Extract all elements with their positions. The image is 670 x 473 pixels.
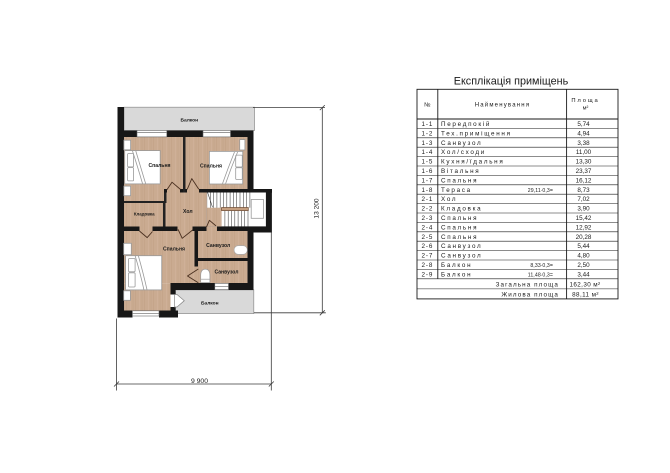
svg-text:11,00: 11,00 <box>576 149 592 156</box>
svg-text:Санвузол: Санвузол <box>441 253 482 260</box>
svg-text:9 900: 9 900 <box>191 378 208 385</box>
svg-text:Спальня: Спальня <box>200 163 222 169</box>
svg-text:1-3: 1-3 <box>421 140 433 147</box>
svg-text:Кухня/їдальня: Кухня/їдальня <box>441 159 504 166</box>
svg-text:3,90: 3,90 <box>577 206 590 213</box>
svg-text:3,44: 3,44 <box>577 271 590 278</box>
svg-text:16,12: 16,12 <box>576 177 592 184</box>
svg-text:Хол: Хол <box>441 196 457 203</box>
svg-text:1-8: 1-8 <box>421 187 433 194</box>
svg-text:4,80: 4,80 <box>577 253 590 260</box>
svg-text:Найменування: Найменування <box>475 102 531 109</box>
svg-text:2-5: 2-5 <box>421 234 433 241</box>
svg-text:Тех.приміщення: Тех.приміщення <box>441 129 512 137</box>
svg-text:Хол/сходи: Хол/сходи <box>441 149 486 156</box>
svg-text:8,73: 8,73 <box>577 187 590 194</box>
svg-text:Хол: Хол <box>183 209 193 215</box>
svg-text:88,11 м²: 88,11 м² <box>572 292 599 299</box>
svg-text:Спальня: Спальня <box>441 215 478 222</box>
svg-text:Передпокій: Передпокій <box>441 120 491 128</box>
svg-text:2-8: 2-8 <box>421 262 433 269</box>
svg-text:2-9: 2-9 <box>421 271 433 278</box>
svg-text:1-1: 1-1 <box>421 121 433 128</box>
svg-text:Санвузол: Санвузол <box>214 269 238 275</box>
svg-text:2,50: 2,50 <box>577 262 590 269</box>
svg-text:1-5: 1-5 <box>421 159 433 166</box>
svg-text:Санвузол: Санвузол <box>441 140 482 147</box>
svg-text:Спальня: Спальня <box>163 246 185 252</box>
svg-text:23,37: 23,37 <box>576 168 592 175</box>
svg-text:№: № <box>424 102 430 109</box>
svg-text:5,74: 5,74 <box>577 121 590 128</box>
svg-text:29,11∙0,3=: 29,11∙0,3= <box>528 188 553 194</box>
svg-text:2-6: 2-6 <box>421 243 433 250</box>
svg-text:1-6: 1-6 <box>421 168 433 175</box>
svg-text:2-7: 2-7 <box>421 253 433 260</box>
svg-text:7,02: 7,02 <box>577 196 590 203</box>
svg-text:Площа: Площа <box>571 98 599 104</box>
svg-text:2-3: 2-3 <box>421 215 433 222</box>
svg-text:1-7: 1-7 <box>421 177 433 184</box>
svg-text:Санвузол: Санвузол <box>441 243 482 250</box>
svg-text:12,92: 12,92 <box>576 224 592 231</box>
svg-text:2-1: 2-1 <box>421 196 433 203</box>
svg-text:5,44: 5,44 <box>577 243 590 250</box>
svg-text:Санвузол: Санвузол <box>206 243 230 249</box>
svg-text:Вітальня: Вітальня <box>441 167 480 175</box>
svg-text:Спальня: Спальня <box>441 177 478 184</box>
svg-text:Балкон: Балкон <box>201 301 219 307</box>
svg-text:Загальна площа: Загальна площа <box>496 281 559 288</box>
svg-text:3,38: 3,38 <box>577 140 590 147</box>
svg-text:Спальня: Спальня <box>441 234 478 241</box>
svg-text:162,30 м²: 162,30 м² <box>569 281 600 288</box>
svg-text:1-2: 1-2 <box>421 130 433 137</box>
svg-text:Тераса: Тераса <box>441 187 472 194</box>
svg-text:8,33∙0,3=: 8,33∙0,3= <box>530 263 553 269</box>
svg-text:Спальня: Спальня <box>148 163 170 169</box>
svg-text:Балкон: Балкон <box>441 271 472 278</box>
svg-text:11,48∙0,3=: 11,48∙0,3= <box>528 272 553 278</box>
svg-text:13 200: 13 200 <box>314 198 321 219</box>
svg-text:Експлікація приміщень: Експлікація приміщень <box>454 76 569 88</box>
svg-text:Кладовка: Кладовка <box>134 212 155 217</box>
svg-text:Балкон: Балкон <box>441 262 472 269</box>
svg-text:13,30: 13,30 <box>576 159 592 166</box>
svg-text:Кладовка: Кладовка <box>441 206 482 213</box>
svg-text:2-2: 2-2 <box>421 206 433 213</box>
svg-text:Балкон: Балкон <box>180 117 198 123</box>
svg-text:2-4: 2-4 <box>421 224 433 231</box>
svg-text:1-4: 1-4 <box>421 149 433 156</box>
svg-text:20,28: 20,28 <box>576 234 592 241</box>
svg-text:15,42: 15,42 <box>576 215 592 222</box>
svg-text:м²: м² <box>583 106 589 112</box>
svg-text:4,94: 4,94 <box>577 130 590 137</box>
svg-text:Спальня: Спальня <box>441 224 478 231</box>
svg-text:Жилова площа: Жилова площа <box>501 292 559 299</box>
